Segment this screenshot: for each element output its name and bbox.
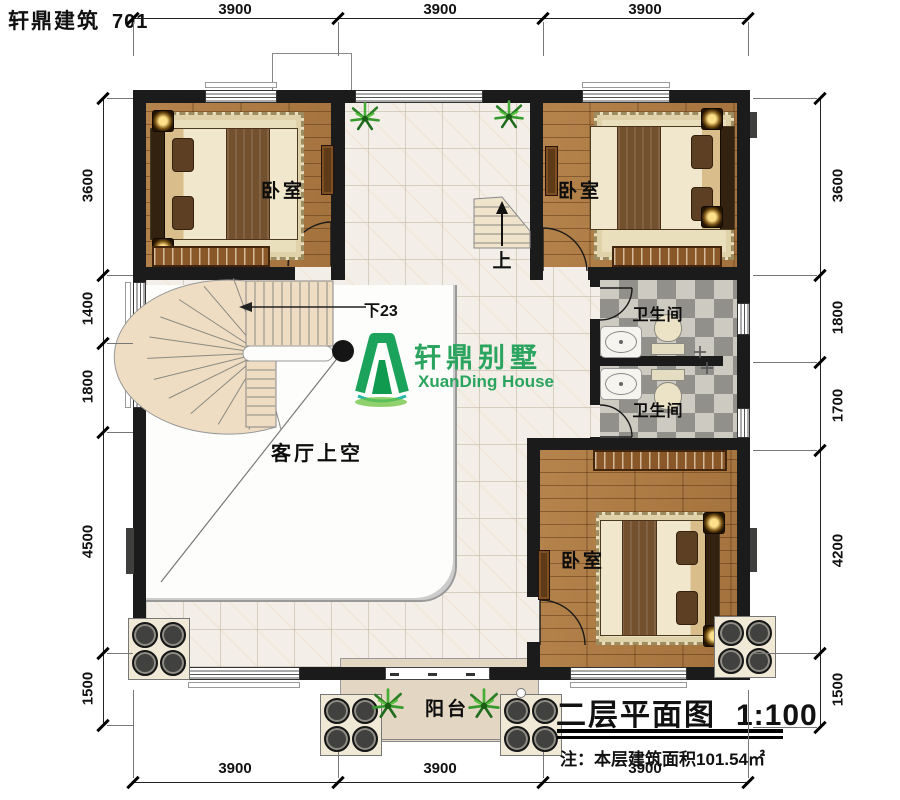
wall xyxy=(133,267,295,280)
plant-icon xyxy=(348,100,382,134)
plan-title-text: 二层平面图 xyxy=(556,699,716,732)
column xyxy=(746,620,772,646)
dim-bottom-2: 3900 xyxy=(390,760,490,777)
extension-line xyxy=(543,22,544,56)
bed-bottom-right xyxy=(600,520,720,636)
window xyxy=(737,303,750,335)
extension-line xyxy=(338,752,339,778)
column xyxy=(160,622,186,648)
column xyxy=(718,620,744,646)
column xyxy=(132,650,158,676)
wall xyxy=(590,280,600,287)
extension-line xyxy=(107,343,133,344)
logo-text-en: XuanDing House xyxy=(418,372,554,392)
extension-line xyxy=(107,653,133,654)
column-cluster xyxy=(714,616,776,678)
pillow xyxy=(676,531,698,565)
column xyxy=(160,650,186,676)
wall xyxy=(527,642,540,680)
extension-line xyxy=(543,752,544,778)
column-cluster xyxy=(128,618,190,680)
bedside-lamp xyxy=(701,108,723,130)
extension-line xyxy=(107,98,133,99)
column xyxy=(532,726,558,752)
window xyxy=(582,90,670,103)
dim-top-1: 3900 xyxy=(185,1,285,18)
column-cluster xyxy=(500,694,562,756)
column xyxy=(504,726,530,752)
dim-line-top xyxy=(133,18,748,19)
stair-down-label: 下23 xyxy=(364,297,398,321)
column xyxy=(352,726,378,752)
logo-text-cn: 轩鼎别墅 xyxy=(414,336,542,375)
bedside-lamp xyxy=(701,206,723,228)
dim-left-3: 1800 xyxy=(80,352,97,422)
wall-pier xyxy=(750,112,757,138)
dim-bottom-1: 3900 xyxy=(185,760,285,777)
room-label-bathroom-upper: 卫生间 xyxy=(614,301,702,325)
extension-line xyxy=(753,450,817,451)
dim-right-4: 4200 xyxy=(830,516,847,586)
window-sill xyxy=(125,282,131,408)
wardrobe xyxy=(152,246,270,267)
drawing-header: 轩鼎建筑701 xyxy=(8,5,148,35)
column xyxy=(132,622,158,648)
wardrobe xyxy=(593,450,727,471)
dim-right-2: 1800 xyxy=(830,283,847,353)
pillow xyxy=(691,135,713,169)
bay-window xyxy=(272,53,352,93)
area-note: 注：本层建筑面积101.54㎡ xyxy=(560,745,765,770)
wall-pier xyxy=(126,528,134,574)
window-sill xyxy=(188,682,300,688)
balcony-drain xyxy=(516,688,526,698)
room-label-bedroom-br: 卧室 xyxy=(538,546,628,573)
extension-line xyxy=(748,690,749,778)
brand-name: 轩鼎建筑 xyxy=(8,10,100,33)
toilet-tank xyxy=(651,343,685,355)
sink-basin xyxy=(605,373,637,395)
dim-right-1: 3600 xyxy=(830,151,847,221)
floor-plan: 轩鼎建筑701 3900 3900 3900 3900 3900 3900 36… xyxy=(0,0,900,800)
wall xyxy=(588,267,750,280)
room-label-living-void: 客厅上空 xyxy=(247,437,387,466)
extension-line xyxy=(338,22,339,56)
extension-line xyxy=(753,727,817,728)
window xyxy=(188,667,300,680)
extension-line xyxy=(748,22,749,56)
room-label-balcony: 阳台 xyxy=(402,694,492,721)
dim-right-3: 1700 xyxy=(830,371,847,441)
balcony-sliding-door xyxy=(385,667,490,680)
extension-line xyxy=(107,275,133,276)
wall xyxy=(530,438,750,450)
extension-line xyxy=(107,432,133,433)
column xyxy=(532,698,558,724)
extension-line xyxy=(753,98,817,99)
bed-body xyxy=(601,521,705,635)
wall xyxy=(133,90,146,282)
plant-icon xyxy=(492,98,526,132)
column xyxy=(718,648,744,674)
dim-left-5: 1500 xyxy=(80,654,97,724)
window xyxy=(737,408,750,438)
pillow xyxy=(172,196,194,230)
xuanding-logo-icon xyxy=(350,326,412,412)
plant-icon xyxy=(370,686,406,722)
wall xyxy=(300,667,385,680)
dim-left-2: 1400 xyxy=(80,274,97,344)
dim-top-3: 3900 xyxy=(595,1,695,18)
room-label-bedroom-tl: 卧室 xyxy=(238,176,328,203)
wall-pier xyxy=(750,528,757,572)
column xyxy=(324,698,350,724)
stair-up-label: 上 xyxy=(487,246,517,273)
sink-upper xyxy=(600,326,642,358)
dim-right-5: 1500 xyxy=(830,655,847,725)
column xyxy=(746,648,772,674)
extension-line xyxy=(133,22,134,56)
extension-line xyxy=(133,690,134,778)
pillow xyxy=(676,591,698,625)
extension-line xyxy=(107,725,133,726)
window xyxy=(205,90,277,103)
toilet-tank xyxy=(651,369,685,381)
extension-line xyxy=(753,362,817,363)
pillow xyxy=(172,138,194,172)
wall xyxy=(737,335,750,408)
dim-left-4: 4500 xyxy=(80,507,97,577)
extension-line xyxy=(753,275,817,276)
window-sill xyxy=(570,682,687,688)
bed-headboard xyxy=(151,129,165,239)
extension-line xyxy=(753,653,817,654)
dim-line-bottom xyxy=(133,782,748,783)
window xyxy=(133,282,146,408)
wardrobe xyxy=(612,246,722,267)
room-label-bathroom-lower: 卫生间 xyxy=(614,397,702,421)
column xyxy=(504,698,530,724)
window-sill xyxy=(205,82,277,88)
bedside-lamp xyxy=(703,512,725,534)
dim-top-2: 3900 xyxy=(390,1,490,18)
dim-line-left xyxy=(103,98,104,725)
window-sill xyxy=(582,82,670,88)
column xyxy=(324,726,350,752)
bedside-lamp xyxy=(152,110,174,132)
title-underline xyxy=(557,736,783,739)
dim-line-right xyxy=(820,98,821,727)
blanket xyxy=(622,520,657,636)
window xyxy=(570,667,687,680)
sink-lower xyxy=(600,368,642,400)
sink-basin xyxy=(605,331,637,353)
dim-left-1: 3600 xyxy=(80,151,97,221)
room-label-bedroom-tr: 卧室 xyxy=(535,176,625,203)
title-underline xyxy=(557,729,783,733)
